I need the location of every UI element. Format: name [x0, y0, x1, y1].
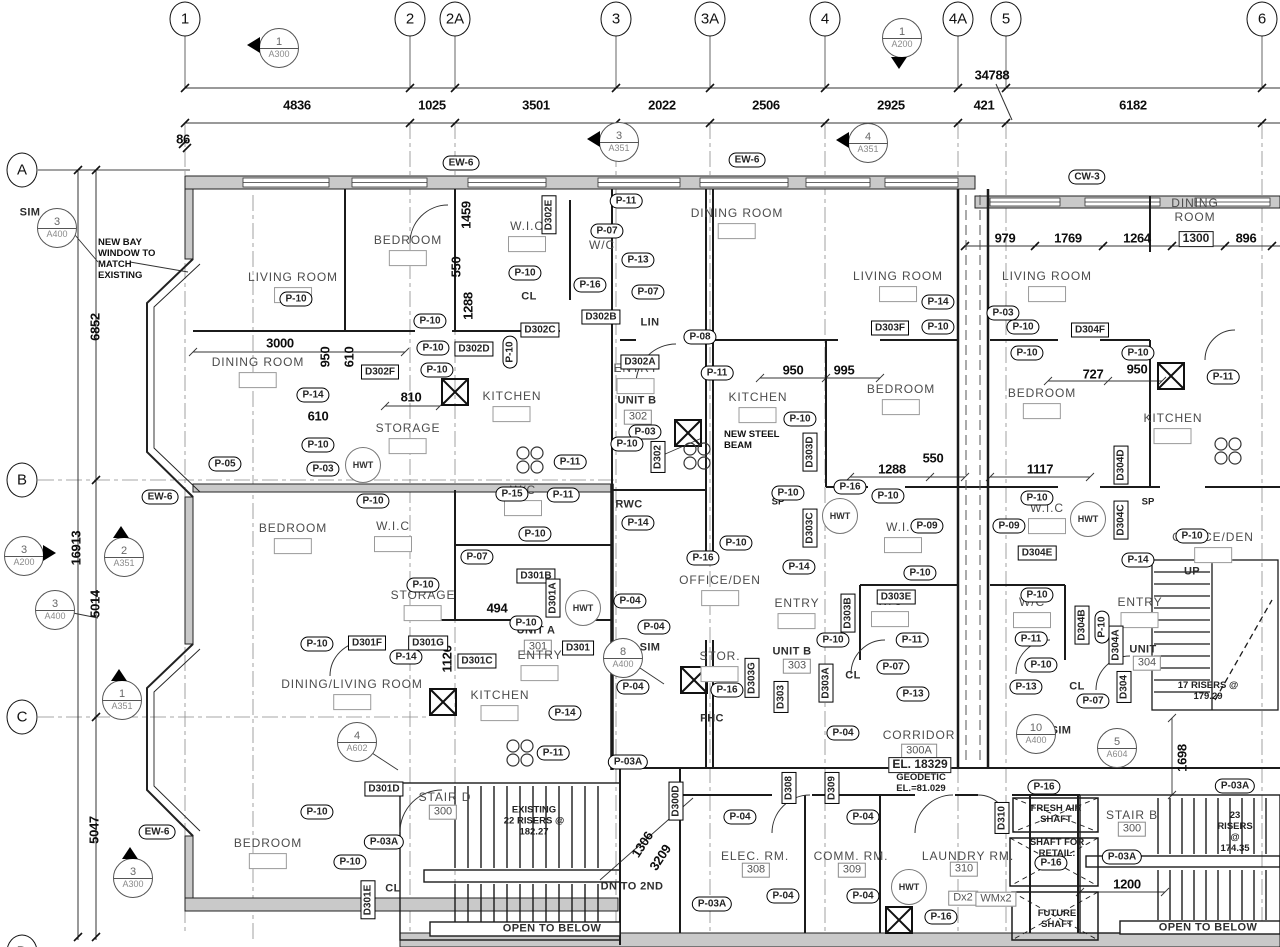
section-marker-4-a351: 4A351 — [848, 123, 888, 163]
tagv-d303c: D303C — [803, 508, 818, 547]
room-label-text: KITCHEN — [471, 689, 530, 703]
pill-p-04: P-04 — [613, 594, 646, 609]
txt-fhc: FHC — [700, 713, 724, 726]
note-new-bay-window: NEW BAY WINDOW TO MATCH EXISTING — [98, 238, 155, 282]
marker-sheet: A300 — [260, 48, 298, 60]
marker-number: 3 — [5, 544, 43, 556]
txt-unit: UNIT — [1129, 644, 1156, 657]
marker-number: 1 — [883, 26, 921, 38]
tagv-d303g: D303G — [745, 658, 760, 698]
marker-sheet: A400 — [604, 658, 642, 670]
marker-number: 2 — [105, 545, 143, 557]
room-number-placeholder — [249, 853, 287, 869]
pill-p-11: P-11 — [547, 488, 580, 503]
pill-p-04: P-04 — [846, 889, 879, 904]
marker-sheet: A351 — [600, 142, 638, 154]
marker-arrow-up — [111, 669, 127, 681]
grid-bubble-column-1: 1 — [170, 2, 201, 37]
pill-p-05: P-05 — [208, 457, 241, 472]
room-w-i-c: W.I.C — [508, 220, 546, 252]
dimv-950: 950 — [319, 347, 334, 368]
room-label-text: BEDROOM — [234, 837, 302, 851]
room-number-placeholder — [1154, 428, 1192, 444]
section-marker-1-a351: 1A351 — [102, 680, 142, 720]
txt-unit-b: UNIT B — [617, 395, 656, 408]
room-bedroom: BEDROOM — [1008, 387, 1076, 419]
dim-3501: 3501 — [522, 99, 550, 114]
pill-p-07: P-07 — [1076, 694, 1109, 709]
dim-810: 810 — [401, 391, 422, 406]
pill-p-03a: P-03A — [692, 897, 732, 912]
dimbox-1300: 1300 — [1179, 231, 1214, 247]
numbox-308: 308 — [742, 863, 770, 878]
dim-3000: 3000 — [266, 337, 294, 352]
pill-p-10: P-10 — [1010, 346, 1043, 361]
dim-727: 727 — [1083, 368, 1104, 383]
plan-linework — [0, 0, 1280, 947]
tag-d302f: D302F — [361, 365, 399, 380]
room-entry: ENTRY — [775, 597, 820, 629]
pill-p-11: P-11 — [701, 366, 734, 381]
dim-896: 896 — [1236, 232, 1257, 247]
dim-995: 995 — [834, 364, 855, 379]
room-number-placeholder — [274, 538, 312, 554]
grid-bubble-column-5: 5 — [991, 2, 1022, 37]
marker-number: 8 — [604, 646, 642, 658]
room-label-text: W.I.C — [510, 220, 544, 234]
pill-p-10: P-10 — [509, 616, 542, 631]
pill-p-10: P-10 — [1175, 529, 1208, 544]
stx-geodetic-el-81-029: GEODETIC EL.=81.029 — [896, 773, 946, 795]
grid-bubble-column-4: 4 — [810, 2, 841, 37]
stx-existing-22-risers-182-27: EXISTING 22 RISERS @ 182.27 — [504, 806, 564, 839]
numbox-302: 302 — [624, 410, 652, 425]
pill-p-04: P-04 — [826, 726, 859, 741]
room-number-placeholder — [1028, 286, 1066, 302]
room-number-placeholder — [701, 666, 739, 682]
tag-d301f: D301F — [348, 636, 386, 651]
pill-p-10: P-10 — [1006, 320, 1039, 335]
txt-cl: CL — [1069, 681, 1084, 694]
pill-p-13: P-13 — [621, 253, 654, 268]
room-number-placeholder — [617, 378, 655, 394]
room-number-placeholder — [508, 236, 546, 252]
marker-number: 1 — [103, 688, 141, 700]
pill-p-10: P-10 — [301, 438, 334, 453]
pill-p-04: P-04 — [723, 810, 756, 825]
pill-ew-6: EW-6 — [139, 825, 176, 840]
grid-bubble-column-2: 2 — [395, 2, 426, 37]
grid-bubble-column-3: 3 — [601, 2, 632, 37]
pill-p-10: P-10 — [719, 536, 752, 551]
tagv-d310: D310 — [995, 802, 1010, 834]
txt-dn-to-2nd: DN TO 2ND — [601, 881, 664, 894]
pill-p-14: P-14 — [921, 295, 954, 310]
pill-ew-6: EW-6 — [142, 490, 179, 505]
txt-up: UP — [1184, 566, 1200, 579]
marker-sheet: A400 — [1017, 734, 1055, 746]
pill-p-16: P-16 — [1034, 856, 1067, 871]
tag-d302d: D302D — [454, 342, 493, 357]
section-marker-3-a400: 3A400 — [35, 590, 75, 630]
stx-sp: SP — [1142, 498, 1155, 509]
floor-plan-sheet: 4836102535012022250629254216182347888697… — [0, 0, 1280, 947]
pill-p-11: P-11 — [1015, 632, 1048, 647]
room-dining-room: DINING ROOM — [212, 356, 305, 388]
marker-sheet: A351 — [105, 557, 143, 569]
section-marker-1-a300: 1A300 — [259, 28, 299, 68]
marker-number: 3 — [36, 598, 74, 610]
pill-p-10: P-10 — [921, 320, 954, 335]
marker-sheet: A351 — [849, 143, 887, 155]
note-new-steel-beam: NEW STEEL BEAM — [724, 430, 779, 452]
hwt-hwt: HWT — [565, 590, 601, 626]
marker-arrow-right — [43, 545, 56, 561]
section-marker-10-a400: 10A400 — [1016, 714, 1056, 754]
marker-arrow-left — [587, 131, 600, 147]
marker-number: 5 — [1098, 736, 1136, 748]
dimv-550: 550 — [450, 257, 465, 278]
room-label-text: LIVING ROOM — [248, 271, 338, 285]
room-number-placeholder — [718, 223, 756, 239]
pill-p-07: P-07 — [631, 285, 664, 300]
pill-p-11: P-11 — [537, 746, 570, 761]
marker-sheet: A200 — [883, 38, 921, 50]
room-bedroom: BEDROOM — [867, 383, 935, 415]
room-number-placeholder — [493, 406, 531, 422]
room-label-text: KITCHEN — [483, 390, 542, 404]
pill-p-14: P-14 — [296, 388, 329, 403]
txt-unit-b: UNIT B — [772, 646, 811, 659]
pill-p-14: P-14 — [782, 560, 815, 575]
numbox-300: 300 — [1118, 822, 1146, 837]
room-dining-room: DINING ROOM — [1153, 197, 1238, 225]
section-marker-3-a400: 3A400 — [37, 208, 77, 248]
dim-6182: 6182 — [1119, 99, 1147, 114]
room-label-text: ENTRY — [518, 649, 563, 663]
room-label-text: BEDROOM — [374, 234, 442, 248]
numbox-304: 304 — [1133, 656, 1161, 671]
tagv-d304d: D304D — [1114, 445, 1129, 484]
dim-494: 494 — [487, 602, 508, 617]
tagv-d301a: D301A — [546, 578, 561, 617]
hwt-hwt: HWT — [345, 447, 381, 483]
room-stair-d: STAIR D — [419, 791, 472, 805]
room-label-text: BEDROOM — [867, 383, 935, 397]
room-storage: STORAGE — [376, 422, 441, 454]
numbox-310: 310 — [950, 862, 978, 877]
tagv-d302e: D302E — [542, 196, 557, 235]
room-number-placeholder — [879, 286, 917, 302]
grid-bubble-column-3a: 3A — [695, 2, 726, 37]
room-label-text: BEDROOM — [259, 522, 327, 536]
room-kitchen: KITCHEN — [729, 391, 788, 423]
stx-23-risers-174-35: 23 RISERS @ 174.35 — [1213, 811, 1258, 855]
room-w-i-c: W.I.C — [1028, 502, 1066, 534]
pill-p-10: P-10 — [413, 314, 446, 329]
tagv-d303: D303 — [774, 681, 789, 713]
pill-p-10: P-10 — [903, 566, 936, 581]
dim-950: 950 — [1127, 363, 1148, 378]
room-living-room: LIVING ROOM — [1002, 270, 1092, 302]
tag-d304e: D304E — [1018, 546, 1057, 561]
pill-p-03a: P-03A — [364, 835, 404, 850]
marker-arrow-down — [891, 57, 907, 69]
pill-p-16: P-16 — [833, 480, 866, 495]
pill-p-10: P-10 — [416, 341, 449, 356]
marker-number: 4 — [338, 730, 376, 742]
tag-d304f: D304F — [1071, 323, 1109, 338]
pill-p-10: P-10 — [1020, 588, 1053, 603]
pill-p-04: P-04 — [637, 620, 670, 635]
marker-number: 3 — [600, 130, 638, 142]
marker-sheet: A351 — [103, 700, 141, 712]
room-entry: ENTRY — [518, 649, 563, 681]
dimv-6852: 6852 — [89, 313, 104, 341]
pill-p-15: P-15 — [495, 487, 528, 502]
pill-p-10: P-10 — [300, 805, 333, 820]
room-number-placeholder — [404, 605, 442, 621]
dimv-1698: 1698 — [1176, 744, 1191, 772]
marker-arrow-left — [247, 37, 260, 53]
section-marker-5-a604: 5A604 — [1097, 728, 1137, 768]
dim-1288: 1288 — [878, 463, 906, 478]
tagv-d303d: D303D — [803, 432, 818, 471]
tag-d302b: D302B — [581, 310, 620, 325]
pill-p-09: P-09 — [910, 519, 943, 534]
grid-bubble-column-4a: 4A — [943, 2, 974, 37]
pill-p-10: P-10 — [279, 292, 312, 307]
section-marker-3-a300: 3A300 — [113, 858, 153, 898]
grid-bubble-row-b: B — [7, 463, 38, 498]
grid-bubble-column-2a: 2A — [440, 2, 471, 37]
room-bedroom: BEDROOM — [259, 522, 327, 554]
grid-bubble-row-a: A — [7, 153, 38, 188]
room-number-placeholder — [778, 613, 816, 629]
dimv-16913: 16913 — [70, 531, 85, 566]
marker-sheet: A604 — [1098, 748, 1136, 760]
room-kitchen: KITCHEN — [1144, 412, 1203, 444]
pill-p-10: P-10 — [783, 412, 816, 427]
marker-arrow-left — [836, 132, 849, 148]
hwt-hwt: HWT — [822, 498, 858, 534]
pill-p-10: P-10 — [816, 633, 849, 648]
dim-610: 610 — [308, 410, 329, 425]
tagv-d300d: D300D — [669, 781, 684, 820]
dim-34788: 34788 — [975, 69, 1010, 84]
room-number-placeholder — [1194, 547, 1232, 563]
room-number-placeholder — [1028, 518, 1066, 534]
room-label-text: LIVING ROOM — [853, 270, 943, 284]
section-marker-2-a351: 2A351 — [104, 537, 144, 577]
txt-open-to-below: OPEN TO BELOW — [1159, 922, 1258, 935]
pill-p-13: P-13 — [1009, 680, 1042, 695]
room-label-text: ENTRY — [775, 597, 820, 611]
dim-1769: 1769 — [1054, 232, 1082, 247]
pill-p-10: P-10 — [356, 494, 389, 509]
section-marker-3-a351: 3A351 — [599, 122, 639, 162]
pill-p-10: P-10 — [1024, 658, 1057, 673]
marker-number: 10 — [1017, 722, 1055, 734]
room-label-text: DINING ROOM — [691, 207, 784, 221]
marker-number: 4 — [849, 131, 887, 143]
room-label-text: ENTRY — [1118, 596, 1163, 610]
pill-p-10: P-10 — [333, 855, 366, 870]
marker-number: 3 — [38, 216, 76, 228]
tag-d302c: D302C — [520, 323, 559, 338]
room-entry: ENTRY — [1118, 596, 1163, 628]
pill-p-11: P-11 — [896, 633, 929, 648]
numbox-dx2: Dx2 — [948, 891, 978, 906]
pill-p-03a: P-03A — [608, 755, 648, 770]
marker-number: 3 — [114, 866, 152, 878]
room-number-placeholder — [374, 536, 412, 552]
room-number-placeholder — [1013, 612, 1051, 628]
section-marker-1-a200: 1A200 — [882, 18, 922, 58]
room-corridor: CORRIDOR — [883, 729, 956, 743]
room-w-c: W/C — [589, 239, 615, 253]
numbox-309: 309 — [838, 863, 866, 878]
pill-p-09: P-09 — [992, 519, 1025, 534]
pill-p-11: P-11 — [610, 194, 643, 209]
section-marker-8-a400: 8A400 — [603, 638, 643, 678]
tagv-d309: D309 — [825, 772, 840, 804]
pill-p-07: P-07 — [876, 660, 909, 675]
room-stor: STOR. — [700, 650, 741, 682]
room-dining-room: DINING ROOM — [691, 207, 784, 239]
numbox-303: 303 — [783, 659, 811, 674]
dim-550: 550 — [923, 452, 944, 467]
txt-cl: CL — [845, 670, 860, 683]
tag-d301c: D301C — [457, 654, 496, 669]
room-label-text: W.I.C — [376, 520, 410, 534]
tagv-d308: D308 — [782, 772, 797, 804]
dim-979: 979 — [995, 232, 1016, 247]
dimv-1459: 1459 — [460, 201, 475, 229]
tagv-d304c: D304C — [1114, 500, 1129, 539]
dim-1200: 1200 — [1113, 878, 1141, 893]
room-number-placeholder — [333, 694, 371, 710]
pill-p-04: P-04 — [766, 889, 799, 904]
grid-bubble-column-6: 6 — [1247, 2, 1278, 37]
room-bedroom: BEDROOM — [374, 234, 442, 266]
pill-p-14: P-14 — [389, 650, 422, 665]
section-marker-4-a602: 4A602 — [337, 722, 377, 762]
pill-p-14: P-14 — [548, 706, 581, 721]
tagv-d303b: D303B — [841, 593, 856, 632]
room-dining-living-room: DINING/LIVING ROOM — [281, 678, 423, 710]
pill-p-10: P-10 — [420, 363, 453, 378]
marker-sheet: A400 — [38, 228, 76, 240]
pill-p-10: P-10 — [300, 637, 333, 652]
pillv-p-10: P-10 — [1095, 610, 1110, 643]
pill-p-03a: P-03A — [1215, 779, 1255, 794]
tagv-d303a: D303A — [819, 663, 834, 702]
marker-sheet: A400 — [36, 610, 74, 622]
tagv-d304b: D304B — [1075, 605, 1090, 644]
room-number-placeholder — [481, 705, 519, 721]
dim-4836: 4836 — [283, 99, 311, 114]
room-label-text: KITCHEN — [729, 391, 788, 405]
tagv-d302: D302 — [651, 441, 666, 473]
room-number-placeholder — [871, 611, 909, 627]
pill-p-10: P-10 — [518, 527, 551, 542]
room-number-placeholder — [389, 250, 427, 266]
pill-p-04: P-04 — [846, 810, 879, 825]
room-storage: STORAGE — [391, 589, 456, 621]
room-number-placeholder — [1121, 612, 1159, 628]
tagv-d304a: D304A — [1109, 625, 1124, 664]
room-label-text: DINING ROOM — [212, 356, 305, 370]
hwt-hwt: HWT — [1070, 501, 1106, 537]
pill-p-16: P-16 — [686, 551, 719, 566]
dim-2022: 2022 — [648, 99, 676, 114]
room-office-den: OFFICE/DEN — [679, 574, 761, 606]
marker-sheet: A602 — [338, 742, 376, 754]
pill-p-13: P-13 — [896, 687, 929, 702]
pill-p-10: P-10 — [1020, 491, 1053, 506]
tagv-d304: D304 — [1117, 671, 1132, 703]
tag-d303e: D303E — [877, 590, 916, 605]
pill-ew-6: EW-6 — [729, 153, 766, 168]
dim-2925: 2925 — [877, 99, 905, 114]
dimv-1288: 1288 — [462, 292, 477, 320]
tagv-d301e: D301E — [361, 881, 376, 920]
pill-cw-3: CW-3 — [1068, 170, 1105, 185]
room-number-placeholder — [389, 438, 427, 454]
pill-ew-6: EW-6 — [443, 156, 480, 171]
room-label-text: OFFICE/DEN — [679, 574, 761, 588]
txt-cl: CL — [385, 883, 400, 896]
room-label-text: STOR. — [700, 650, 741, 664]
room-number-placeholder — [1023, 403, 1061, 419]
room-number-placeholder — [239, 372, 277, 388]
pill-p-07: P-07 — [460, 550, 493, 565]
tag-d301d: D301D — [364, 782, 403, 797]
pill-p-08: P-08 — [683, 330, 716, 345]
tag-d301: D301 — [562, 641, 594, 656]
pill-p-14: P-14 — [621, 516, 654, 531]
pill-p-14: P-14 — [1121, 553, 1154, 568]
marker-sheet: A300 — [114, 878, 152, 890]
pill-p-10: P-10 — [871, 489, 904, 504]
room-label-text: DINING/LIVING ROOM — [281, 678, 423, 692]
tag-d301g: D301G — [408, 636, 448, 651]
pill-p-10: P-10 — [1121, 346, 1154, 361]
dim-1117: 1117 — [1027, 463, 1053, 478]
room-label-text: STORAGE — [376, 422, 441, 436]
pill-p-03a: P-03A — [1102, 850, 1142, 865]
marker-number: 1 — [260, 36, 298, 48]
tag-d302a: D302A — [620, 355, 659, 370]
hwt-hwt: HWT — [891, 869, 927, 905]
room-label-text: KITCHEN — [1144, 412, 1203, 426]
pill-p-10: P-10 — [771, 486, 804, 501]
marker-arrow-up — [122, 847, 138, 859]
stx-fresh-air-shaft: FRESH AIR SHAFT — [1031, 804, 1082, 826]
room-kitchen: KITCHEN — [483, 390, 542, 422]
dim-1264: 1264 — [1123, 232, 1151, 247]
pill-p-10: P-10 — [508, 266, 541, 281]
dim-2506: 2506 — [752, 99, 780, 114]
room-number-placeholder — [504, 500, 542, 516]
room-w-i-c: W.I.C — [374, 520, 412, 552]
numbox-300: 300 — [429, 805, 457, 820]
dim-1025: 1025 — [418, 99, 446, 114]
room-number-placeholder — [701, 590, 739, 606]
room-number-placeholder — [882, 399, 920, 415]
dimv-610: 610 — [343, 347, 358, 368]
